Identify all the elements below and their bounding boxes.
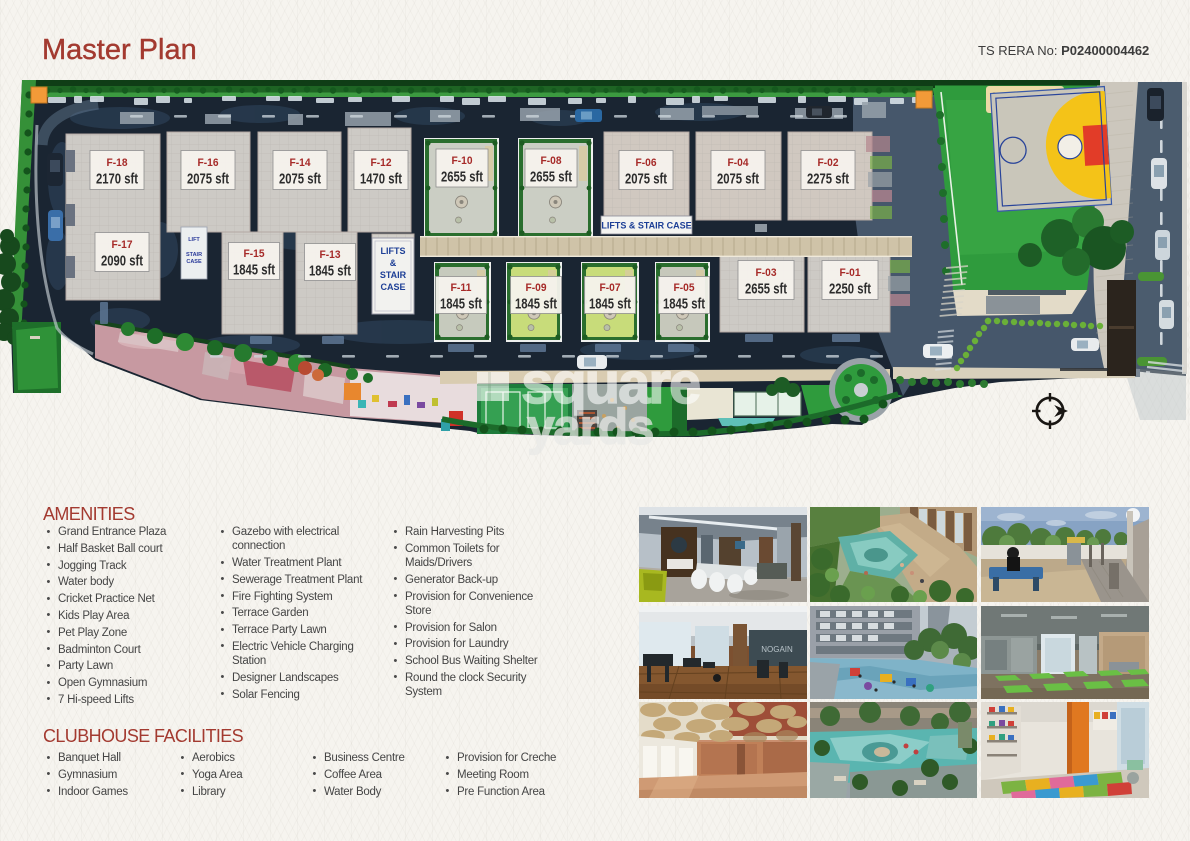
svg-text:F-17: F-17 [112, 239, 133, 251]
svg-text:2655 sft: 2655 sft [530, 170, 572, 186]
svg-text:F-04: F-04 [728, 157, 750, 169]
svg-text:F-06: F-06 [636, 157, 657, 169]
svg-text:&: & [390, 258, 397, 268]
svg-text:CASE: CASE [380, 282, 405, 292]
svg-text:F-14: F-14 [290, 157, 312, 169]
svg-text:F-03: F-03 [756, 267, 777, 279]
svg-text:2275 sft: 2275 sft [807, 172, 849, 188]
svg-text:2075 sft: 2075 sft [187, 172, 229, 188]
svg-text:2075 sft: 2075 sft [717, 172, 759, 188]
svg-text:LIFT: LIFT [188, 237, 200, 243]
svg-text:1845 sft: 1845 sft [663, 297, 705, 313]
svg-text:STAIR: STAIR [186, 252, 202, 258]
svg-text:F-15: F-15 [244, 248, 265, 260]
svg-text:LIFTS: LIFTS [381, 246, 406, 256]
svg-text:2170 sft: 2170 sft [96, 172, 138, 188]
svg-text:2655 sft: 2655 sft [441, 170, 483, 186]
svg-text:2655 sft: 2655 sft [745, 282, 787, 298]
svg-text:F-18: F-18 [107, 157, 128, 169]
svg-text:LIFTS & STAIR CASE: LIFTS & STAIR CASE [601, 221, 691, 231]
svg-text:F-01: F-01 [840, 267, 861, 279]
svg-text:CASE: CASE [186, 259, 202, 265]
svg-text:F-05: F-05 [674, 282, 695, 294]
svg-text:F-16: F-16 [198, 157, 219, 169]
svg-text:2250 sft: 2250 sft [829, 282, 871, 298]
svg-text:2075 sft: 2075 sft [279, 172, 321, 188]
svg-text:1470 sft: 1470 sft [360, 172, 402, 188]
svg-text:1845 sft: 1845 sft [309, 264, 351, 280]
svg-text:1845 sft: 1845 sft [233, 263, 275, 279]
svg-text:F-10: F-10 [452, 155, 473, 167]
svg-text:F-11: F-11 [451, 282, 472, 294]
svg-text:F-09: F-09 [526, 282, 547, 294]
svg-text:F-12: F-12 [371, 157, 392, 169]
svg-text:NOGAIN: NOGAIN [761, 645, 793, 654]
svg-text:2090 sft: 2090 sft [101, 254, 143, 270]
svg-text:1845 sft: 1845 sft [589, 297, 631, 313]
svg-text:1845 sft: 1845 sft [515, 297, 557, 313]
svg-text:F-02: F-02 [818, 157, 839, 169]
svg-text:STAIR: STAIR [380, 270, 407, 280]
svg-text:F-13: F-13 [320, 249, 341, 261]
svg-text:2075 sft: 2075 sft [625, 172, 667, 188]
svg-text:F-07: F-07 [600, 282, 621, 294]
svg-text:F-08: F-08 [541, 155, 562, 167]
svg-text:yards: yards [527, 399, 653, 455]
svg-text:1845 sft: 1845 sft [440, 297, 482, 313]
